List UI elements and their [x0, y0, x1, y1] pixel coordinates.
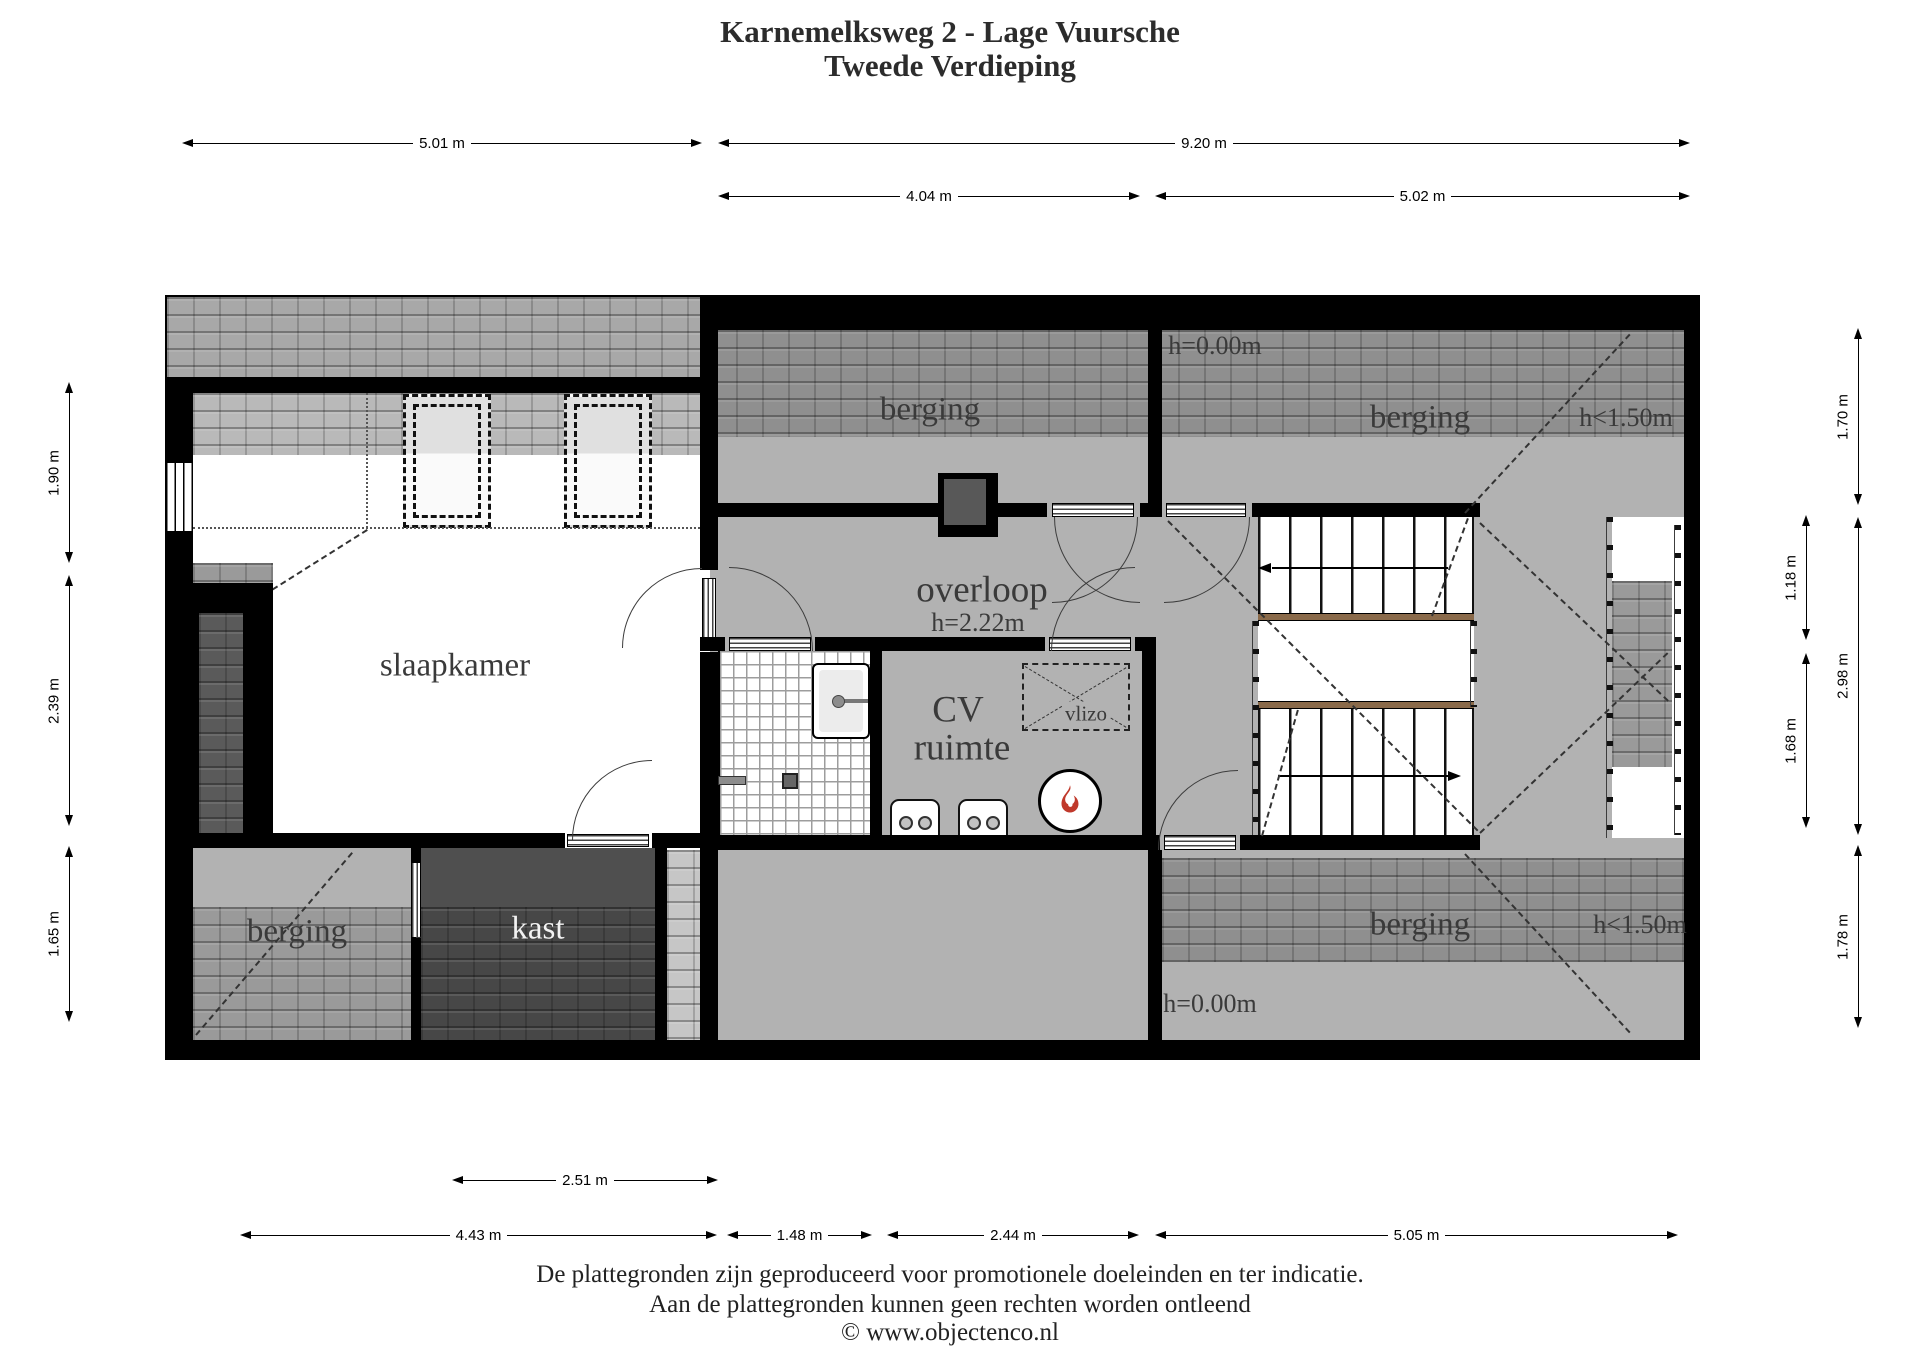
- room-label-cv-1: CV: [932, 689, 983, 732]
- dimension-left-height-3: 1.65 m: [62, 846, 76, 1022]
- height-label-bottom-right: h<1.50m: [1593, 910, 1686, 940]
- room-label-berging-top-right: berging: [1370, 400, 1470, 437]
- room-label-overloop: overloop: [916, 569, 1048, 612]
- shaft-tiles: [199, 613, 243, 838]
- dimension-label: 5.02 m: [1394, 188, 1452, 205]
- dimension-right-outer-height-1: 1.70 m: [1851, 328, 1865, 505]
- height-label-overloop: h=2.22m: [931, 608, 1024, 638]
- dimension-right-outer-height-2: 2.98 m: [1851, 517, 1865, 835]
- footer-copyright: © www.objectenco.nl: [0, 1319, 1900, 1347]
- door-leaf-slaapkamer: [702, 578, 716, 640]
- wall-segment: [870, 651, 882, 837]
- wall-segment: [655, 848, 667, 1040]
- roof-tiles-top-left: [165, 295, 710, 379]
- mv-box: [958, 799, 1008, 837]
- stair-railing: [1252, 621, 1259, 835]
- wall-segment: [700, 652, 718, 1060]
- stairs-lower-flight: [1258, 709, 1474, 835]
- floorplan: slaapkamer berging berging h=0.00m h<1.5…: [0, 0, 1920, 1358]
- wall-segment: [710, 295, 1700, 330]
- height-label-bottom: h=0.00m: [1163, 989, 1256, 1019]
- kast-floor: [421, 848, 655, 907]
- cv-boiler: [1038, 769, 1102, 833]
- vent-connector-icon: [899, 816, 913, 830]
- wall-segment: [700, 295, 718, 570]
- room-label-berging-bottom-right: berging: [1370, 907, 1470, 944]
- dimension-label: 5.01 m: [413, 135, 471, 152]
- dimension-label: 1.90 m: [46, 450, 63, 496]
- dimension-right-outer-height-3: 1.78 m: [1851, 845, 1865, 1028]
- dimension-label: 1.65 m: [46, 911, 63, 957]
- label-vlizo: vlizo: [1062, 702, 1110, 727]
- dimension-top-right-width: 9.20 m: [718, 136, 1690, 150]
- skylight-inner-frame: [574, 404, 642, 518]
- room-label-cv-2: ruimte: [914, 727, 1011, 770]
- stairs-upper-flight: [1258, 517, 1474, 613]
- dimension-line: [1858, 849, 1859, 1024]
- wall-segment: [165, 1040, 1700, 1060]
- dimension-bottom-kast-width: 2.51 m: [452, 1173, 718, 1187]
- shaft-roof-strip: [193, 563, 273, 583]
- wall-segment: [1148, 850, 1162, 1040]
- stair-landing-edge: [1258, 613, 1474, 621]
- dimension-label: 1.70 m: [1835, 394, 1852, 440]
- chimney-flue: [944, 479, 986, 525]
- wall-segment: [1148, 330, 1162, 517]
- wall-segment: [996, 503, 1047, 517]
- room-label-berging-bottom-left: berging: [247, 914, 347, 951]
- mv-box: [890, 799, 940, 837]
- wall-segment: [815, 637, 882, 651]
- vent-connector-icon: [986, 816, 1000, 830]
- dimension-bottom-width-4: 5.05 m: [1155, 1228, 1678, 1242]
- dimension-label: 1.18 m: [1783, 555, 1800, 601]
- wall-segment: [710, 503, 940, 517]
- door-leaf-berging-right: [1166, 503, 1246, 517]
- wall-segment: [165, 377, 193, 462]
- dimension-top-left-width: 5.01 m: [182, 136, 702, 150]
- shower-tap-icon: [718, 776, 746, 785]
- dimension-bottom-width-1: 4.43 m: [240, 1228, 717, 1242]
- dimension-label: 1.78 m: [1835, 914, 1852, 960]
- vent-connector-icon: [918, 816, 932, 830]
- dimension-line: [1806, 519, 1807, 636]
- dimension-line: [69, 579, 70, 822]
- dimension-label: 2.44 m: [984, 1227, 1042, 1244]
- skylight-window: [403, 394, 491, 528]
- wall-segment: [193, 833, 565, 848]
- wall-segment: [1240, 835, 1480, 850]
- height-label-top: h=0.00m: [1168, 331, 1261, 361]
- dimension-line: [1806, 657, 1807, 824]
- dimension-mid-width-1: 4.04 m: [718, 189, 1140, 203]
- room-label-slaapkamer: slaapkamer: [380, 648, 530, 685]
- dimension-right-inner-height-2: 1.68 m: [1799, 653, 1813, 828]
- footer-disclaimer-1: De plattegronden zijn geproduceerd voor …: [0, 1261, 1900, 1289]
- dimension-mid-width-2: 5.02 m: [1155, 189, 1690, 203]
- dimension-left-height-1: 1.90 m: [62, 382, 76, 563]
- wall-segment: [700, 637, 725, 651]
- dimension-label: 5.05 m: [1388, 1227, 1446, 1244]
- dimension-label: 2.98 m: [1835, 653, 1852, 699]
- window-left: [165, 462, 193, 532]
- dimension-label: 1.68 m: [1783, 718, 1800, 764]
- dimension-left-height-2: 2.39 m: [62, 575, 76, 826]
- dimension-line: [69, 850, 70, 1018]
- stair-direction-line: [1272, 567, 1448, 569]
- wall-segment: [882, 637, 1045, 651]
- dimension-bottom-width-2: 1.48 m: [727, 1228, 872, 1242]
- dimension-line: [69, 386, 70, 559]
- dimension-bottom-width-3: 2.44 m: [887, 1228, 1139, 1242]
- dimension-label: 2.39 m: [46, 678, 63, 724]
- footer-disclaimer-2: Aan de plattegronden kunnen geen rechten…: [0, 1291, 1900, 1319]
- wall-segment: [1142, 637, 1156, 835]
- skylight-inner-frame: [413, 404, 481, 518]
- height-label-top-right: h<1.50m: [1579, 403, 1672, 433]
- wall-segment: [1684, 295, 1700, 1060]
- dimension-label: 1.48 m: [771, 1227, 829, 1244]
- vide-railing: [1674, 525, 1681, 835]
- dimension-label: 4.43 m: [450, 1227, 508, 1244]
- dimension-line: [1858, 521, 1859, 831]
- stair-landing-edge: [1258, 701, 1474, 709]
- berging-bottom-left-floor: [193, 848, 411, 907]
- dimension-label: 9.20 m: [1175, 135, 1233, 152]
- wall-segment: [165, 532, 193, 1060]
- dimension-right-inner-height-1: 1.18 m: [1799, 515, 1813, 640]
- wall-segment: [1140, 503, 1158, 517]
- height-limit-line: [193, 527, 700, 529]
- door-leaf-berging-left: [1052, 503, 1134, 517]
- stair-railing: [1470, 621, 1477, 707]
- wall-segment: [1252, 503, 1480, 517]
- flame-icon: [1055, 784, 1085, 818]
- stair-arrow-down-icon: [1258, 563, 1271, 573]
- room-label-kast: kast: [511, 911, 564, 948]
- dimension-line: [1858, 332, 1859, 501]
- wall-segment: [700, 835, 1160, 850]
- dimension-label: 4.04 m: [900, 188, 958, 205]
- skylight-window: [564, 394, 652, 528]
- stair-arrow-up-icon: [1448, 771, 1461, 781]
- stair-void: [1258, 621, 1474, 701]
- shower-drain-icon: [782, 773, 798, 789]
- wall-segment: [165, 377, 710, 393]
- vide-railing: [1606, 517, 1613, 838]
- height-limit-line: [366, 393, 368, 528]
- faucet-knob-icon: [832, 695, 845, 708]
- vent-connector-icon: [967, 816, 981, 830]
- room-label-berging-top-left: berging: [880, 392, 980, 429]
- dimension-label: 2.51 m: [556, 1172, 614, 1189]
